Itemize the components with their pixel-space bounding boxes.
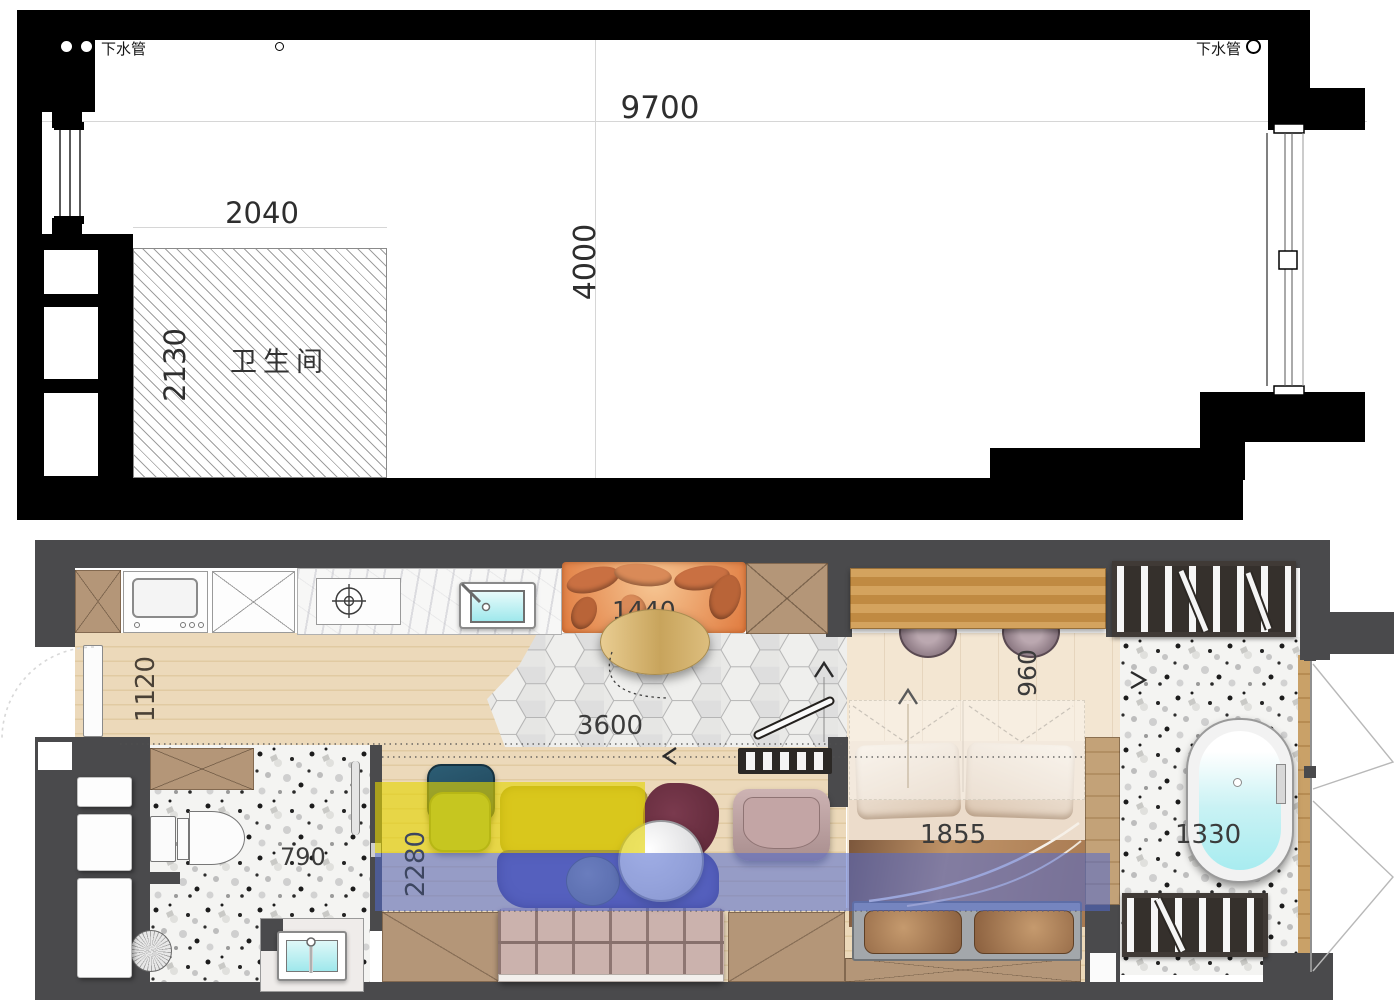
bench-cushion — [974, 910, 1074, 954]
bathtub — [1186, 718, 1294, 883]
oven-door — [132, 578, 198, 618]
toilet-mid — [177, 818, 189, 860]
drain-circle-icon — [59, 39, 74, 54]
bookshelf-bottom — [1122, 893, 1268, 957]
entry-door-leaf — [83, 645, 103, 737]
sofa-backrest — [498, 974, 724, 982]
bookshelf-top — [1112, 561, 1296, 637]
sink-basin — [470, 590, 525, 623]
dim-overall-width: 9700 — [580, 90, 740, 126]
banquette-cushion — [564, 561, 622, 598]
wall-right-upper — [1300, 540, 1330, 660]
cabinet-right-of-sofa — [728, 912, 845, 982]
oven-knob-icon — [134, 622, 140, 628]
bath-wall-panel — [77, 878, 132, 978]
drain-circle-icon — [79, 39, 94, 54]
armchair-seat — [743, 797, 820, 849]
banquette-cushion — [613, 561, 673, 589]
dining-table — [600, 609, 710, 675]
dim-bathroom-width: 2040 — [182, 196, 342, 230]
vanity — [260, 918, 364, 992]
toilet-tank — [150, 816, 176, 862]
gas-stove — [316, 578, 401, 625]
wall-left-upper — [35, 540, 75, 647]
banquette-cushion — [566, 593, 602, 634]
dim-bed: 1855 — [920, 820, 986, 850]
dim-bathroom: 790 — [280, 843, 326, 871]
kitchen-appliance-box — [212, 571, 295, 633]
dim-entry-strip: 1120 — [131, 629, 161, 749]
oven-knob-icon — [189, 622, 195, 628]
dim-chaise-zone: 2280 — [401, 804, 431, 924]
wall-mid-partition-top — [826, 563, 852, 637]
washer-cabinet — [150, 748, 254, 790]
kitchen-sink — [459, 582, 536, 629]
shower-glass — [351, 761, 360, 835]
wall-mid-partition-low — [828, 737, 848, 807]
armchair — [733, 789, 830, 861]
highlight-blue-band — [375, 853, 1110, 911]
bed-canopy-overlay — [849, 700, 1085, 800]
cabinet-left-of-sofa — [382, 912, 500, 982]
wall-right-ext — [1330, 612, 1394, 654]
kitchen-cabinet-left — [75, 570, 121, 633]
drain-circle-icon — [1246, 39, 1261, 54]
vanity-sink — [277, 931, 347, 981]
floorplan-canvas: 下水管 下水管 9700 4000 2040 2130 卫生间 — [0, 0, 1400, 1000]
bed-foot-storage-floor — [845, 958, 1081, 982]
small-drain-circle-icon — [275, 42, 284, 51]
wardrobe-pilaster — [1090, 953, 1116, 982]
kitchen-oven — [123, 571, 208, 633]
wall-bath-stub — [148, 872, 180, 884]
wall-niche-entry — [38, 742, 72, 770]
bathtub-drain-icon — [1233, 778, 1242, 787]
oven-knob-icon — [198, 622, 204, 628]
floor-drain-icon — [130, 930, 172, 972]
bench-cushion — [864, 910, 962, 954]
tufted-sofa — [498, 908, 724, 982]
drain-label-right: 下水管 — [1196, 38, 1241, 59]
bathroom-room-label: 卫生间 — [230, 340, 329, 379]
vanity-sink-water — [286, 940, 338, 972]
window-symbols — [0, 0, 1400, 530]
oven-knob-icon — [180, 622, 186, 628]
wall-bottom-right-block — [1263, 953, 1333, 1000]
cabinet-right-of-banquette — [746, 563, 828, 634]
dim-bathroom-depth: 2130 — [158, 305, 188, 425]
dim-desk-nook: 960 — [1013, 613, 1041, 733]
bathtub-handle — [1276, 764, 1286, 804]
bath-wall-panel — [77, 814, 132, 871]
wall-bottom — [35, 982, 1333, 1000]
dim-bathtub: 1330 — [1175, 820, 1241, 850]
desk — [850, 568, 1106, 629]
dim-living-span: 3600 — [550, 711, 670, 741]
bath-wall-panel — [77, 777, 132, 807]
drain-label-left: 下水管 — [101, 38, 146, 59]
window-sill-deck — [1298, 655, 1312, 985]
dim-overall-depth: 4000 — [568, 202, 598, 322]
